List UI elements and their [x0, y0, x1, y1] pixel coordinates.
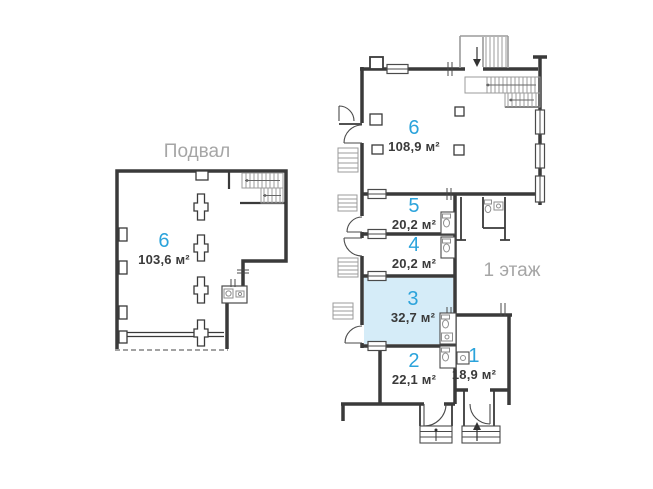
toilet-bowl-icon — [485, 205, 491, 212]
room-region-floor1-4[interactable] — [364, 238, 453, 274]
entrance-down-arrow-icon — [473, 59, 481, 67]
room-region-floor1-3[interactable] — [364, 278, 453, 344]
stair-shaft-walls — [460, 36, 508, 68]
room-region-floor1-1[interactable] — [457, 317, 507, 388]
room-region-floor1-6[interactable] — [364, 72, 538, 192]
room-region-basement-6[interactable] — [120, 174, 282, 346]
basement-title: Подвал — [164, 142, 230, 162]
stair-hatch — [486, 37, 506, 67]
floor1-top-exterior-stair — [460, 36, 508, 68]
floorplan-graphics — [0, 0, 653, 489]
floorplan-canvas: Подвал 1 этаж 6 103,6 м² 6 108,9 м² 5 20… — [0, 0, 653, 489]
wall-pilaster — [370, 57, 383, 69]
first-floor-title: 1 этаж — [484, 261, 541, 281]
porch-direction-dot — [435, 429, 438, 432]
room-region-floor1-2[interactable] — [382, 348, 453, 402]
sink-icon — [494, 202, 503, 210]
porch-steps — [462, 426, 500, 443]
room-region-floor1-5[interactable] — [364, 197, 453, 232]
toilet-tank-icon — [485, 200, 492, 204]
floor1-left-exterior-stairs — [333, 148, 358, 319]
